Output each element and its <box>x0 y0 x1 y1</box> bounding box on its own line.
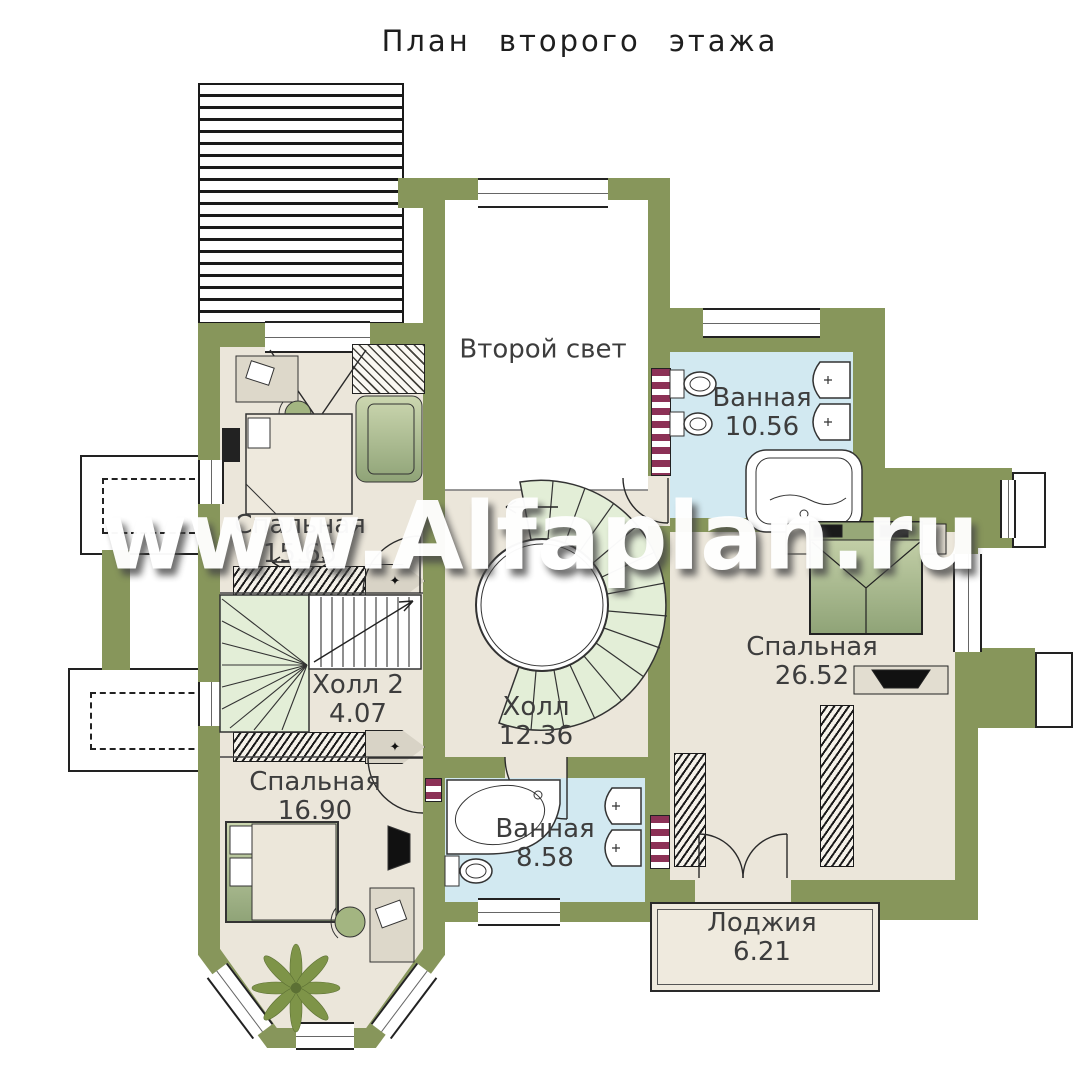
room-label-bedroom-bottomleft: Спальная16.90 <box>249 768 381 826</box>
door-opening <box>505 757 567 778</box>
window <box>478 898 560 926</box>
room-label-bathroom-top: Ванная10.56 <box>712 384 811 442</box>
ventilation-shaft <box>651 368 671 476</box>
page-title: План второго этажа <box>382 24 779 58</box>
side-roof-outline <box>1035 652 1073 728</box>
ventilation-shaft <box>425 778 442 802</box>
window <box>478 178 608 208</box>
wardrobe <box>820 705 854 867</box>
closet-louver <box>233 732 367 762</box>
watermark: www.Alfaplan.ru <box>101 483 979 592</box>
room-label-bedroom-right: Спальная26.52 <box>746 633 878 691</box>
room-label-bathroom-bottom: Ванная8.58 <box>495 815 594 873</box>
roof-hatch-block <box>198 83 404 327</box>
door-opening-loggia <box>695 878 791 904</box>
window <box>703 308 820 338</box>
side-roof-outline <box>1012 472 1046 548</box>
room-label-hall: Холл12.36 <box>499 693 573 751</box>
wardrobe <box>352 344 425 394</box>
wardrobe <box>674 753 706 867</box>
room-label-hall2: Холл 24.07 <box>312 671 404 729</box>
diamond-icon: ✦ <box>390 740 401 755</box>
room-label-loggia: Лоджия6.21 <box>707 909 816 967</box>
window <box>198 682 224 726</box>
ventilation-shaft <box>650 815 670 869</box>
window <box>1000 480 1016 538</box>
floor-plan-page: План второго этажа ✦ ✦ <box>0 0 1080 1080</box>
bay-window <box>296 1022 354 1050</box>
wall-segment <box>978 648 1035 728</box>
room-label-second-light: Второй свет <box>459 335 626 364</box>
